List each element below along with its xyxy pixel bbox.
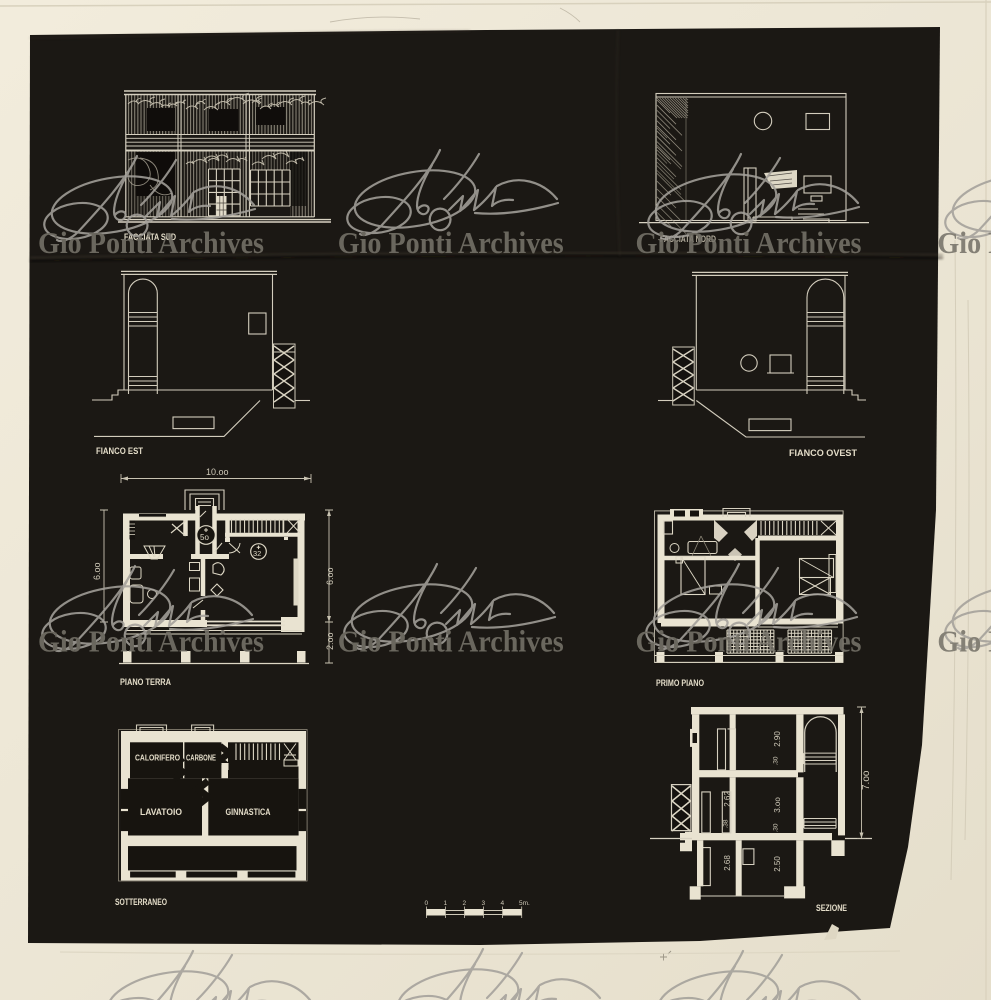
svg-text:7.oo: 7.oo xyxy=(861,770,872,790)
svg-text:0: 0 xyxy=(425,900,429,907)
svg-text:.38: .38 xyxy=(723,819,730,828)
svg-text:5o: 5o xyxy=(200,533,209,542)
svg-text:2.68: 2.68 xyxy=(723,855,732,871)
svg-text:10.oo: 10.oo xyxy=(206,467,229,477)
svg-text:PRIMO PIANO: PRIMO PIANO xyxy=(656,678,704,689)
svg-text:32: 32 xyxy=(253,549,261,558)
svg-text:GINNASTICA: GINNASTICA xyxy=(226,807,271,818)
svg-text:2: 2 xyxy=(463,900,467,907)
svg-text:.30: .30 xyxy=(773,756,780,765)
svg-text:5m.: 5m. xyxy=(519,900,530,907)
svg-text:SOTTERRANEO: SOTTERRANEO xyxy=(115,897,167,908)
svg-text:.30: .30 xyxy=(773,823,780,832)
svg-text:1: 1 xyxy=(444,900,448,907)
svg-text:FIANCO OVEST: FIANCO OVEST xyxy=(789,448,857,459)
svg-text:4: 4 xyxy=(501,900,505,907)
svg-text:6.oo: 6.oo xyxy=(325,567,335,585)
svg-text:6.oo: 6.oo xyxy=(92,562,102,580)
svg-text:2.50: 2.50 xyxy=(773,856,782,872)
svg-text:3: 3 xyxy=(482,900,486,907)
svg-text:2.oo: 2.oo xyxy=(325,632,335,650)
svg-text:LAVATOIO: LAVATOIO xyxy=(140,807,182,818)
svg-text:FIANCO EST: FIANCO EST xyxy=(96,446,143,457)
svg-text:PIANO TERRA: PIANO TERRA xyxy=(120,677,171,688)
svg-text:CALORIFERO: CALORIFERO xyxy=(135,753,180,763)
svg-text:3.oo: 3.oo xyxy=(773,797,782,813)
svg-text:2.90: 2.90 xyxy=(773,731,782,747)
svg-text:CARBONE: CARBONE xyxy=(186,753,216,763)
svg-text:2.62: 2.62 xyxy=(723,791,732,807)
svg-text:SEZIONE: SEZIONE xyxy=(816,903,847,914)
